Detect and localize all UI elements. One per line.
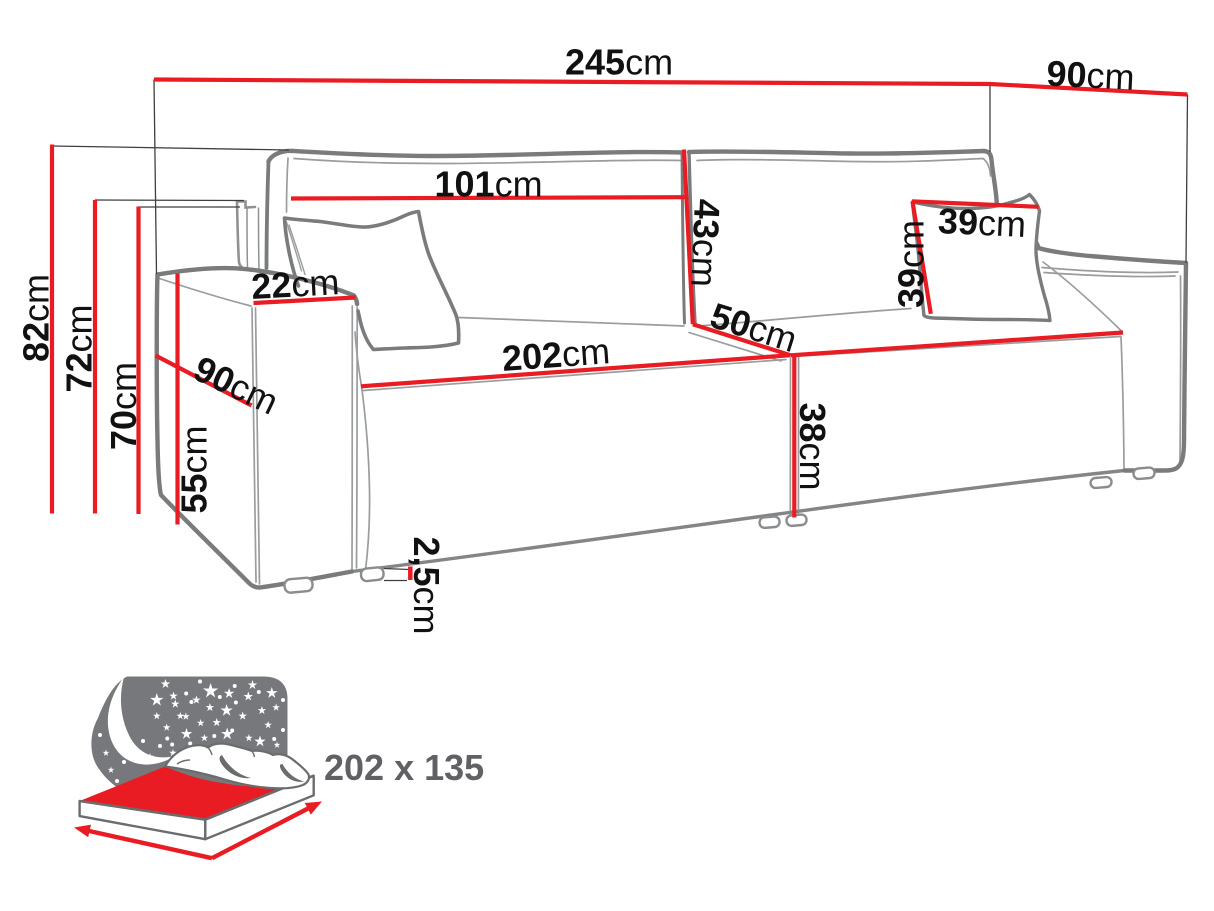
svg-text:70cm: 70cm bbox=[103, 362, 144, 450]
svg-text:245cm: 245cm bbox=[565, 42, 673, 83]
svg-text:39cm: 39cm bbox=[891, 220, 932, 308]
svg-text:22cm: 22cm bbox=[250, 261, 340, 307]
svg-text:101cm: 101cm bbox=[435, 164, 543, 205]
svg-text:39cm: 39cm bbox=[937, 200, 1027, 245]
svg-text:202cm: 202cm bbox=[501, 330, 612, 379]
svg-text:202 x 135: 202 x 135 bbox=[324, 747, 484, 788]
svg-text:82cm: 82cm bbox=[16, 274, 57, 362]
svg-text:43cm: 43cm bbox=[683, 198, 728, 288]
svg-text:55cm: 55cm bbox=[174, 425, 215, 513]
svg-text:90cm: 90cm bbox=[1046, 53, 1136, 98]
svg-text:72cm: 72cm bbox=[59, 304, 100, 392]
svg-text:38cm: 38cm bbox=[792, 403, 833, 491]
svg-text:2,5cm: 2,5cm bbox=[406, 537, 447, 635]
